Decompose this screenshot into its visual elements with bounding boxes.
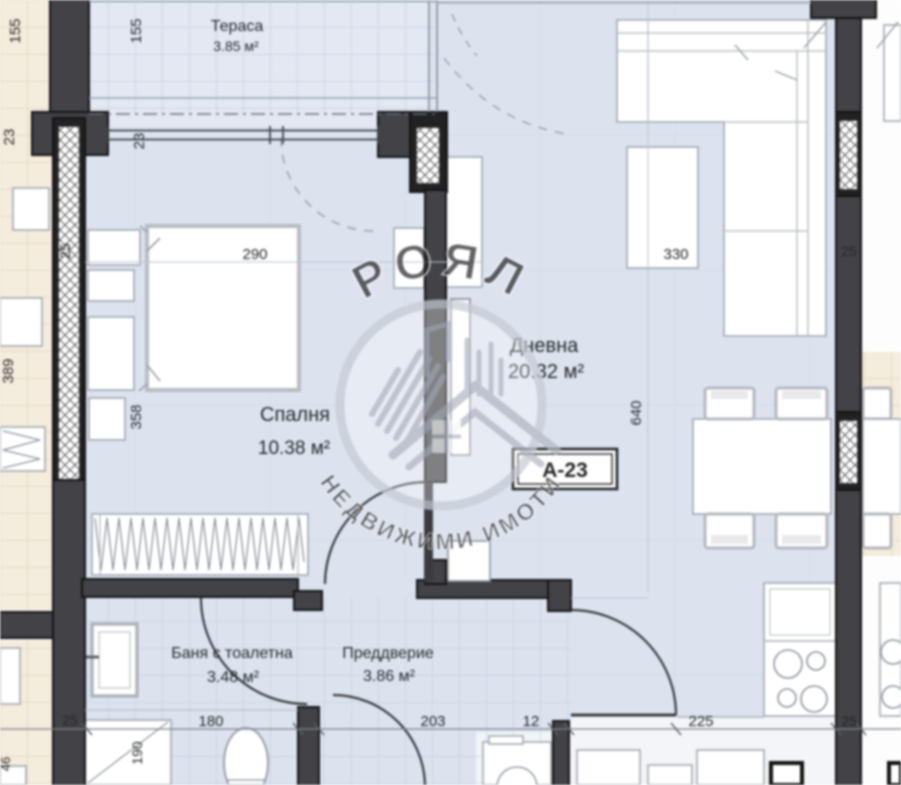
svg-text:25: 25: [841, 713, 857, 729]
svg-text:3.86 м²: 3.86 м²: [363, 668, 416, 685]
svg-text:Спалня: Спалня: [260, 404, 330, 426]
svg-text:3.85 м²: 3.85 м²: [213, 38, 259, 54]
svg-text:12: 12: [523, 713, 540, 730]
svg-text:290: 290: [242, 246, 267, 263]
svg-text:10.38 м²: 10.38 м²: [258, 438, 330, 459]
svg-text:155: 155: [7, 18, 24, 43]
svg-text:Преддверие: Преддверие: [342, 645, 434, 662]
svg-text:155: 155: [128, 18, 145, 43]
svg-text:640: 640: [628, 400, 645, 425]
svg-text:25: 25: [841, 243, 857, 259]
svg-text:25: 25: [57, 243, 73, 259]
svg-text:46: 46: [0, 757, 13, 771]
svg-text:3.48 м²: 3.48 м²: [207, 669, 260, 686]
svg-text:23: 23: [131, 133, 148, 150]
svg-text:330: 330: [663, 246, 688, 263]
svg-text:389: 389: [0, 358, 17, 383]
svg-text:225: 225: [688, 713, 713, 730]
svg-text:23: 23: [1, 129, 18, 146]
svg-text:203: 203: [420, 713, 445, 730]
svg-text:Баня с тоалетна: Баня с тоалетна: [171, 645, 293, 662]
svg-text:Тераса: Тераса: [211, 18, 264, 35]
svg-text:358: 358: [128, 404, 145, 429]
svg-text:190: 190: [129, 741, 145, 765]
svg-text:180: 180: [198, 713, 223, 730]
svg-text:25: 25: [62, 712, 78, 728]
